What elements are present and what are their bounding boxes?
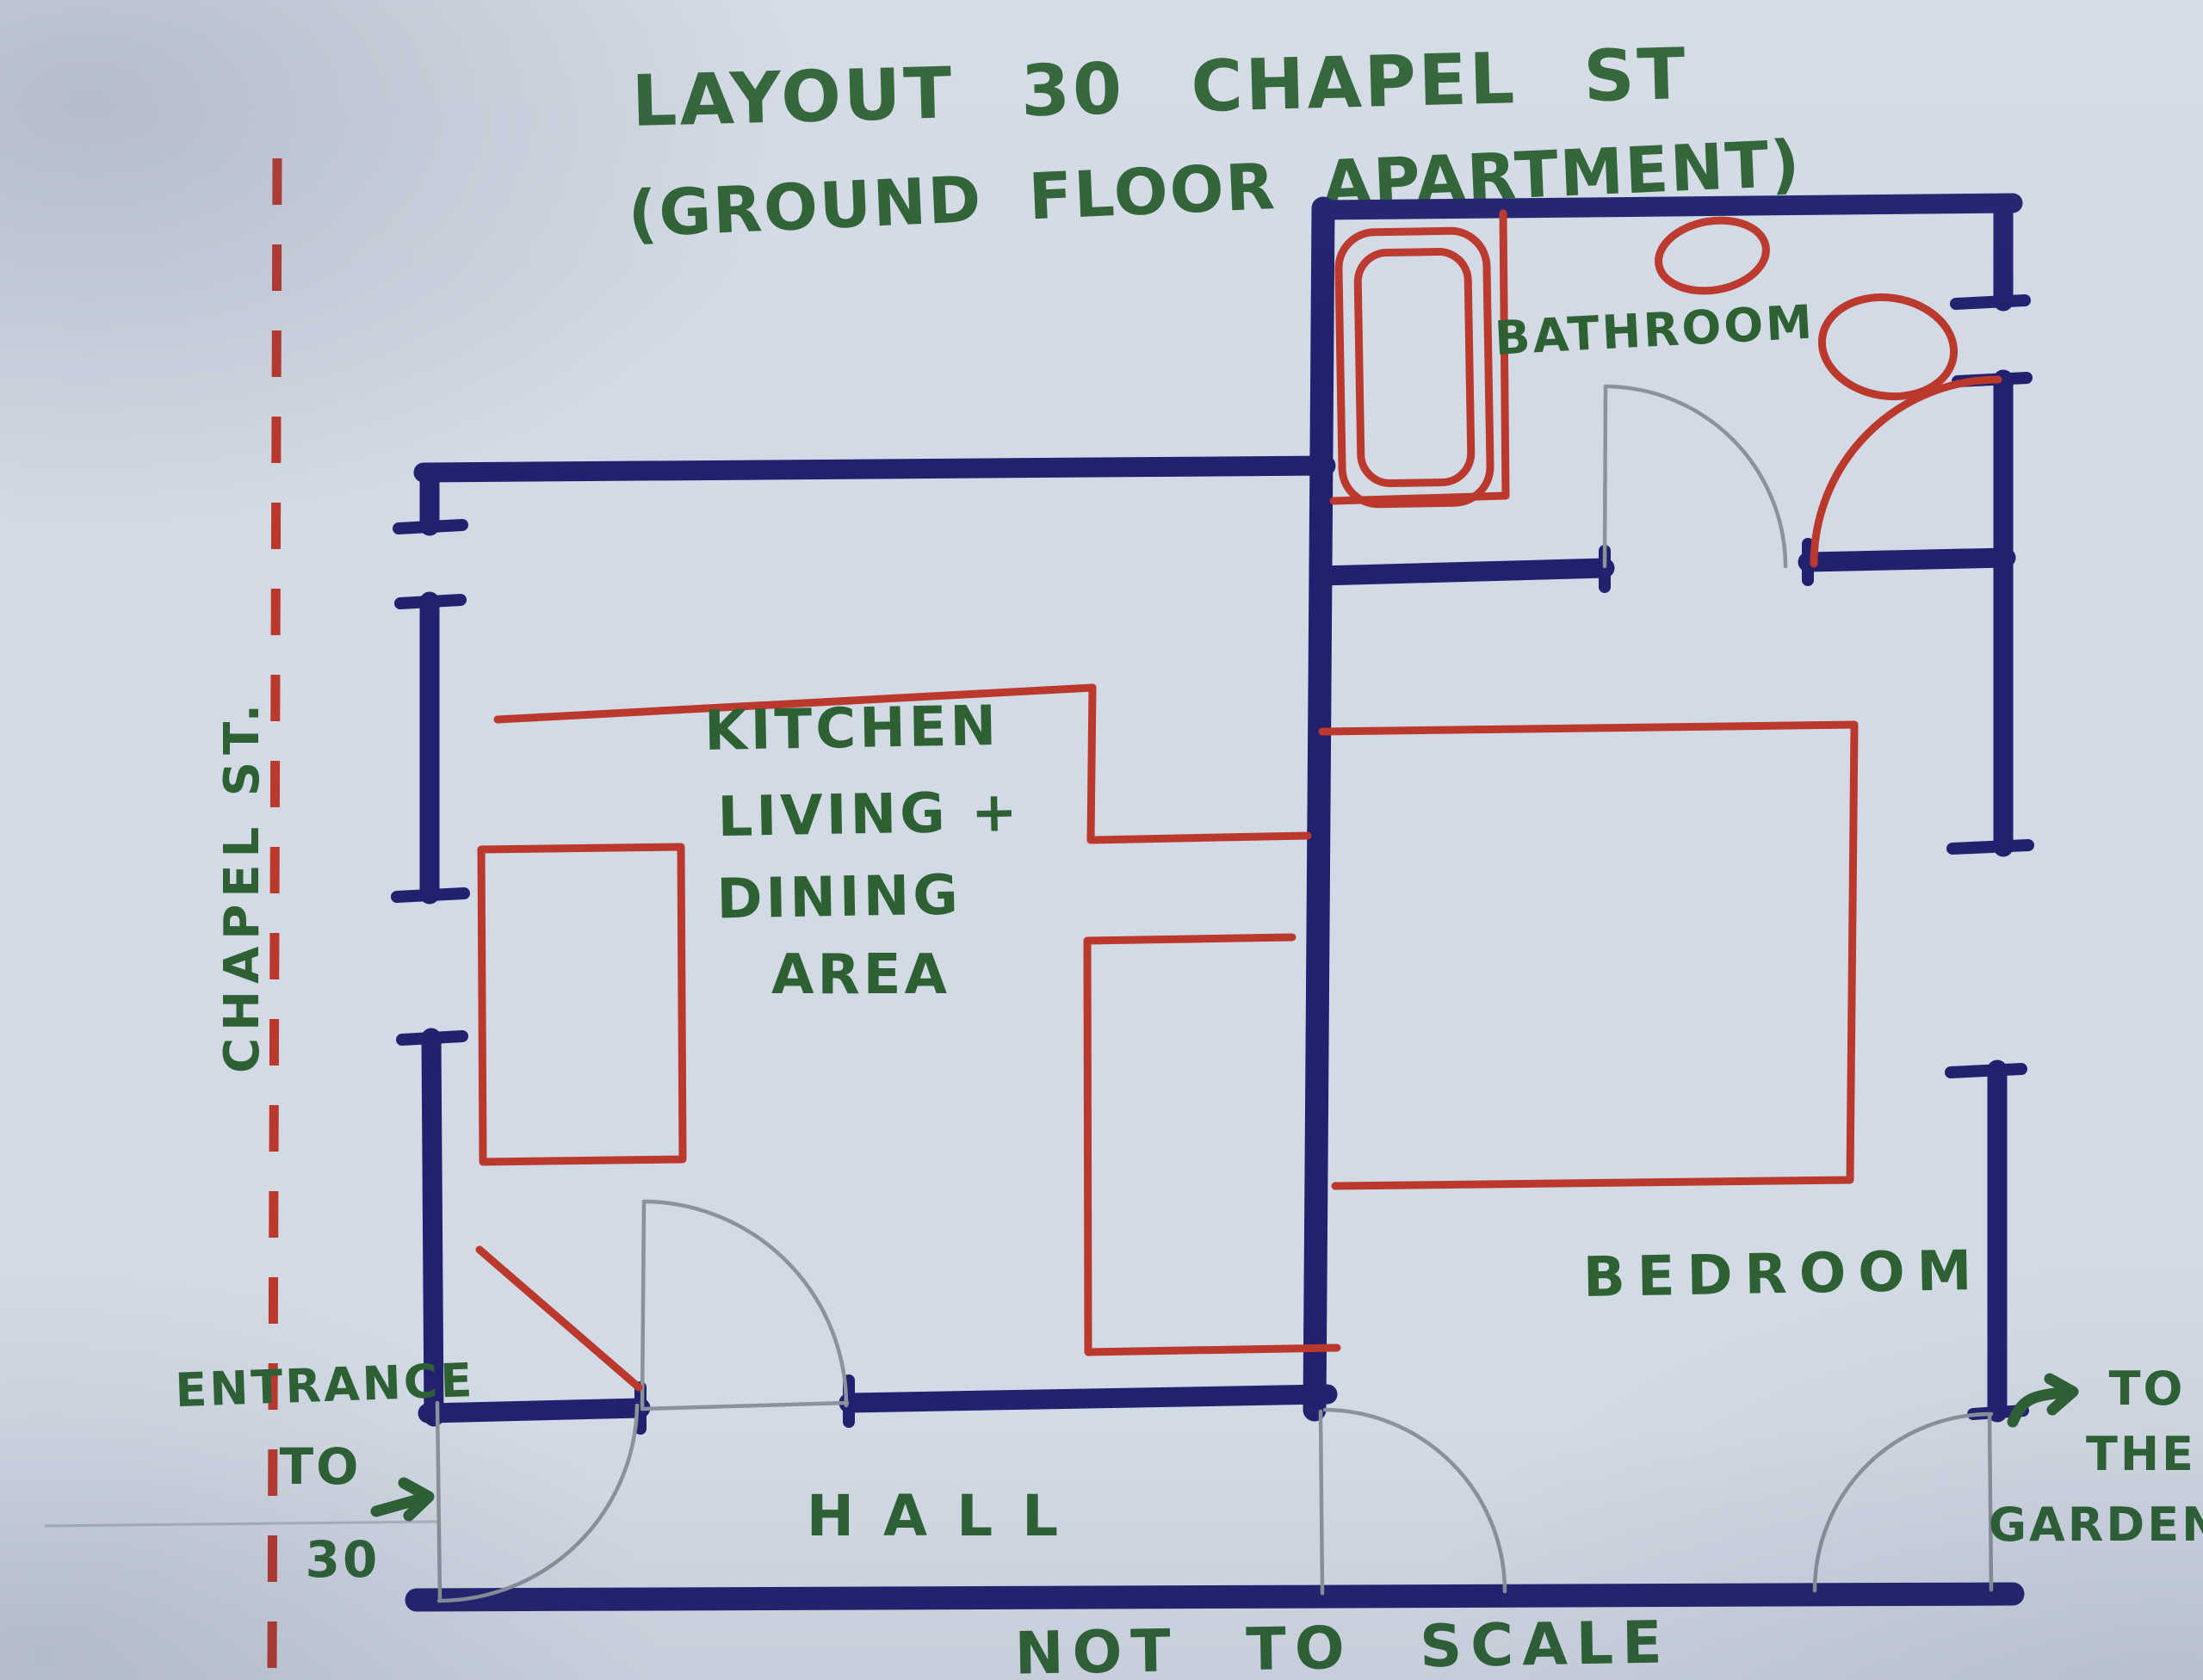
hall-label: HALL bbox=[807, 1483, 1087, 1549]
entrance-label-line3: 30 bbox=[306, 1530, 381, 1589]
wall-bathroom-bottom-left bbox=[1321, 568, 1605, 576]
wall-hall-top-right bbox=[849, 1394, 1327, 1403]
street-label: CHAPEL ST. bbox=[214, 697, 270, 1073]
wall-kitchen-top bbox=[424, 466, 1326, 472]
bathtub-inner bbox=[1358, 251, 1472, 484]
hall-door-leaf bbox=[1321, 1411, 1322, 1593]
bedroom-label: BEDROOM bbox=[1582, 1239, 1984, 1310]
garden-arrow-icon bbox=[2013, 1379, 2073, 1422]
bed bbox=[1322, 725, 1854, 1186]
page-subtitle: (GROUND FLOOR APARTMENT) bbox=[627, 127, 1803, 251]
title-block: LAYOUT 30 CHAPEL ST (GROUND FLOOR APARTM… bbox=[627, 34, 1803, 252]
entrance-door-leaf bbox=[437, 1403, 440, 1598]
scale-note: NOT TO SCALE bbox=[1014, 1609, 1671, 1680]
street-dashed-line bbox=[272, 158, 277, 1677]
hall-door-arc bbox=[1325, 1410, 1505, 1591]
corner-cupboard-diagonal bbox=[480, 1250, 639, 1387]
wall-bottom bbox=[417, 1594, 2013, 1600]
wall-cap bbox=[1952, 845, 2028, 849]
shower-screen-bottom bbox=[1334, 496, 1506, 501]
kitchen-island bbox=[481, 847, 683, 1162]
bathroom-label: BATHROOM bbox=[1494, 294, 1816, 365]
garden-label-line3: GARDEN bbox=[1989, 1498, 2203, 1552]
bathroom-corner-arc bbox=[1814, 380, 1998, 564]
kitchen-label-line4: AREA bbox=[771, 943, 950, 1007]
wall-divider bbox=[1315, 208, 1323, 1410]
entrance-arrow-icon bbox=[376, 1483, 429, 1516]
kitchen-label-line3: DINING bbox=[716, 864, 962, 932]
wall-cap bbox=[1956, 300, 2025, 304]
wall-cap bbox=[397, 893, 464, 897]
kitchen-door-threshold bbox=[642, 1403, 847, 1409]
bathroom-door-arc bbox=[1606, 386, 1785, 566]
kitchen-label-line2: LIVING + bbox=[717, 781, 1021, 849]
wall-cap bbox=[399, 525, 462, 528]
kitchen-door-arc bbox=[644, 1201, 846, 1405]
garden-label-line2: THE bbox=[2086, 1427, 2196, 1481]
entrance-door-arc bbox=[439, 1405, 637, 1601]
entrance-label-line1: ENTRANCE bbox=[174, 1353, 475, 1417]
floor-plan-drawing: CHAPEL ST. LAYOUT 30 CHAPEL ST (GROUND F… bbox=[0, 0, 2203, 1680]
garden-door-arc bbox=[1815, 1414, 1991, 1590]
wall-cap bbox=[400, 600, 461, 603]
wall-hall-top-left bbox=[428, 1408, 640, 1413]
kitchen-label-line1: KITCHEN bbox=[704, 695, 1000, 763]
doors bbox=[45, 386, 1991, 1601]
kitchen-counter-return-bottom bbox=[1091, 836, 1308, 840]
wall-bathroom-top bbox=[1324, 203, 2013, 210]
page-title: LAYOUT 30 CHAPEL ST bbox=[631, 34, 1689, 143]
dining-table bbox=[1087, 937, 1337, 1352]
kitchen-door-leaf bbox=[642, 1201, 644, 1406]
garden-label-line1: TO bbox=[2109, 1362, 2186, 1416]
wall-cap bbox=[1951, 1069, 2021, 1072]
wall-bathroom-bottom-right bbox=[1808, 558, 2006, 562]
floor-plan-page: CHAPEL ST. LAYOUT 30 CHAPEL ST (GROUND F… bbox=[0, 0, 2203, 1680]
entrance-path-line bbox=[45, 1522, 437, 1526]
toilet bbox=[1653, 213, 1772, 300]
chapel-street: CHAPEL ST. bbox=[214, 158, 277, 1677]
entrance-label-line2: TO bbox=[280, 1437, 362, 1496]
kitchen-counter-return bbox=[1091, 688, 1092, 840]
bathroom-door-leaf bbox=[1605, 386, 1606, 566]
wall-cap bbox=[402, 1036, 462, 1040]
